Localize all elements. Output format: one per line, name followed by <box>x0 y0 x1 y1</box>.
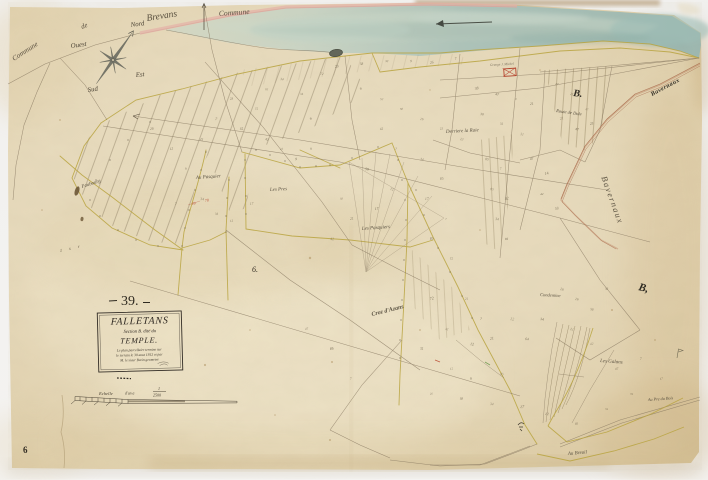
svg-text:42: 42 <box>330 237 334 241</box>
svg-text:42: 42 <box>540 192 544 196</box>
svg-text:26: 26 <box>150 127 154 131</box>
svg-text:6: 6 <box>23 445 28 455</box>
svg-text:B.: B. <box>572 88 583 100</box>
svg-text:21: 21 <box>465 297 469 301</box>
svg-text:26: 26 <box>420 117 424 121</box>
svg-text:TEMPLE.: TEMPLE. <box>120 336 158 346</box>
svg-text:39.: 39. <box>121 294 139 309</box>
svg-text:17: 17 <box>250 202 254 206</box>
svg-text:Section B. dite du: Section B. dite du <box>123 328 156 334</box>
svg-text:64: 64 <box>525 337 529 341</box>
svg-text:34: 34 <box>490 402 494 406</box>
svg-text:Echelle: Echelle <box>98 391 113 396</box>
svg-text:42: 42 <box>445 327 449 331</box>
svg-text:31: 31 <box>630 392 634 396</box>
svg-text:72: 72 <box>320 72 324 76</box>
svg-text:Sud: Sud <box>87 86 99 94</box>
svg-text:Est: Est <box>134 71 145 79</box>
svg-text:85: 85 <box>440 176 445 181</box>
svg-text:9: 9 <box>310 147 312 151</box>
svg-text:21: 21 <box>489 335 494 341</box>
svg-text:78: 78 <box>204 197 209 203</box>
svg-text:21: 21 <box>350 217 354 221</box>
svg-text:34: 34 <box>605 407 609 411</box>
svg-text:42: 42 <box>590 342 594 346</box>
svg-text:31: 31 <box>500 122 504 126</box>
svg-text:34: 34 <box>495 217 499 222</box>
svg-text:d'un a: d'un a <box>125 392 134 396</box>
svg-text:85: 85 <box>500 372 504 376</box>
svg-text:Les Pres: Les Pres <box>269 187 287 193</box>
svg-text:47: 47 <box>615 367 619 371</box>
svg-text:FALLETANS: FALLETANS <box>109 315 168 328</box>
svg-text:85: 85 <box>330 346 334 351</box>
svg-text:x: x <box>68 246 72 251</box>
svg-text:17: 17 <box>375 207 379 211</box>
svg-text:31: 31 <box>420 347 424 351</box>
svg-text:12: 12 <box>470 342 474 347</box>
svg-text:6.: 6. <box>252 265 258 274</box>
svg-text:2500: 2500 <box>153 393 161 398</box>
svg-text:1: 1 <box>158 386 160 391</box>
svg-text:21: 21 <box>530 102 534 106</box>
svg-text:34: 34 <box>300 92 304 96</box>
svg-text:26: 26 <box>429 60 434 65</box>
svg-text:23: 23 <box>280 147 284 151</box>
svg-text:Condemine: Condemine <box>540 292 561 298</box>
svg-text:12: 12 <box>510 316 515 321</box>
svg-text:85: 85 <box>505 237 509 241</box>
svg-text:12: 12 <box>545 412 549 416</box>
